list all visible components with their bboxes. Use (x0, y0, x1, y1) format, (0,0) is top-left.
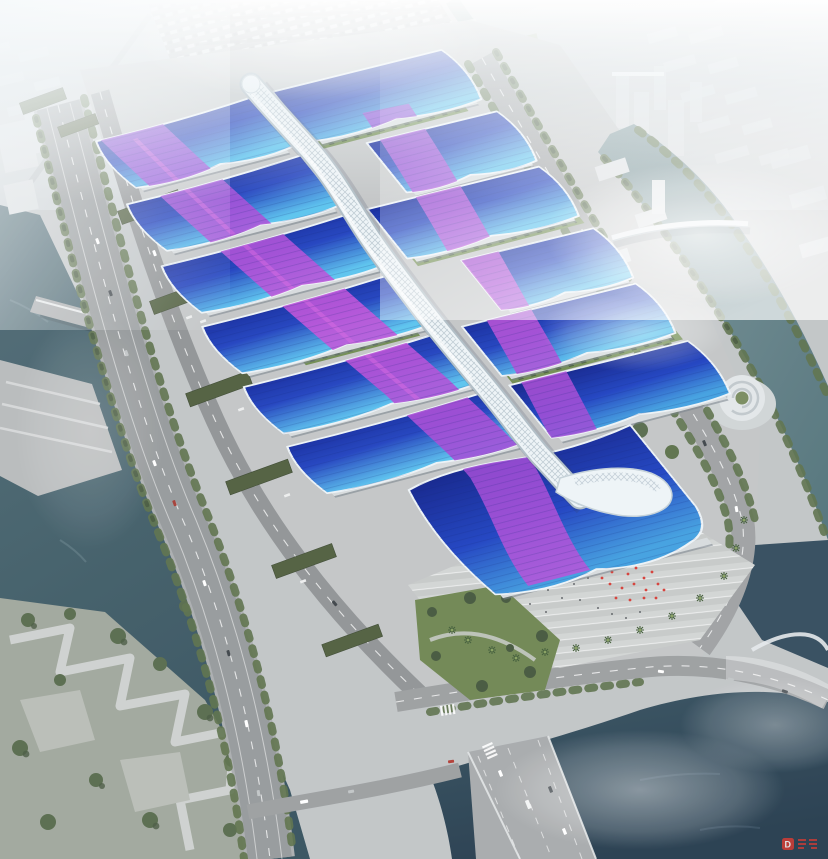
scene-canvas: D (0, 0, 828, 859)
watermark-letter: D (785, 840, 792, 850)
watermark: D (782, 838, 817, 850)
atmosphere-haze (0, 0, 828, 859)
aerial-render: D (0, 0, 828, 859)
